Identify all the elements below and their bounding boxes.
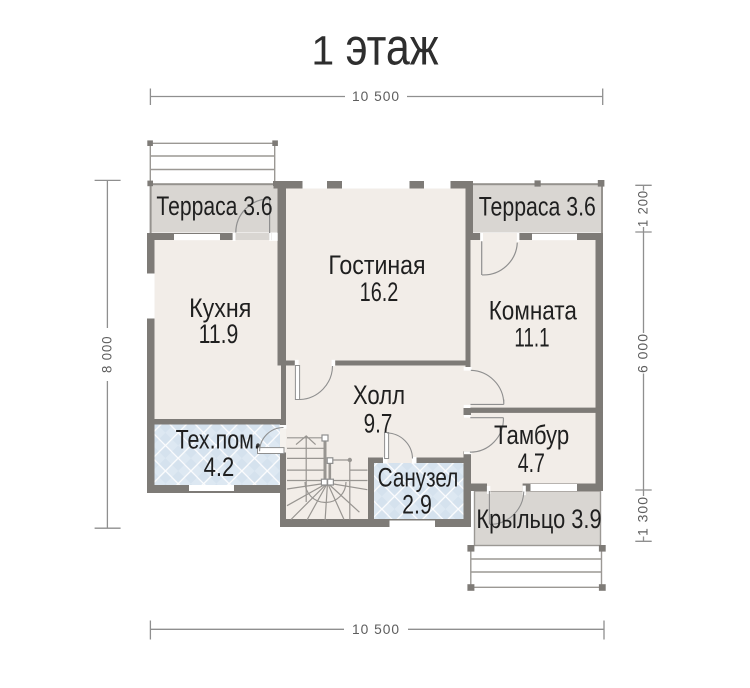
svg-text:11.1: 11.1 — [514, 323, 549, 353]
svg-text:Холл: Холл — [353, 380, 405, 410]
svg-text:Терраса 3.6: Терраса 3.6 — [479, 192, 596, 222]
svg-text:Санузел: Санузел — [378, 463, 459, 493]
svg-text:Тех.пом.: Тех.пом. — [176, 425, 260, 455]
svg-text:9.7: 9.7 — [364, 409, 393, 439]
svg-text:Комната: Комната — [489, 296, 578, 326]
svg-text:1 300: 1 300 — [635, 496, 651, 536]
svg-text:Крыльцо 3.9: Крыльцо 3.9 — [476, 504, 601, 534]
svg-text:4.7: 4.7 — [518, 448, 545, 478]
svg-text:11.9: 11.9 — [199, 319, 239, 349]
svg-text:1 этаж: 1 этаж — [311, 19, 438, 77]
svg-text:4.2: 4.2 — [204, 452, 235, 482]
svg-text:10 500: 10 500 — [352, 88, 400, 104]
svg-text:6 000: 6 000 — [635, 333, 651, 373]
svg-text:10 500: 10 500 — [352, 621, 400, 637]
svg-text:Тамбур: Тамбур — [494, 420, 569, 450]
svg-text:16.2: 16.2 — [360, 277, 399, 307]
svg-text:Терраса 3.6: Терраса 3.6 — [156, 191, 272, 221]
svg-text:Гостиная: Гостиная — [328, 250, 425, 280]
svg-text:2.9: 2.9 — [402, 490, 432, 520]
svg-text:8 000: 8 000 — [99, 336, 115, 374]
svg-text:1 200: 1 200 — [635, 190, 651, 227]
